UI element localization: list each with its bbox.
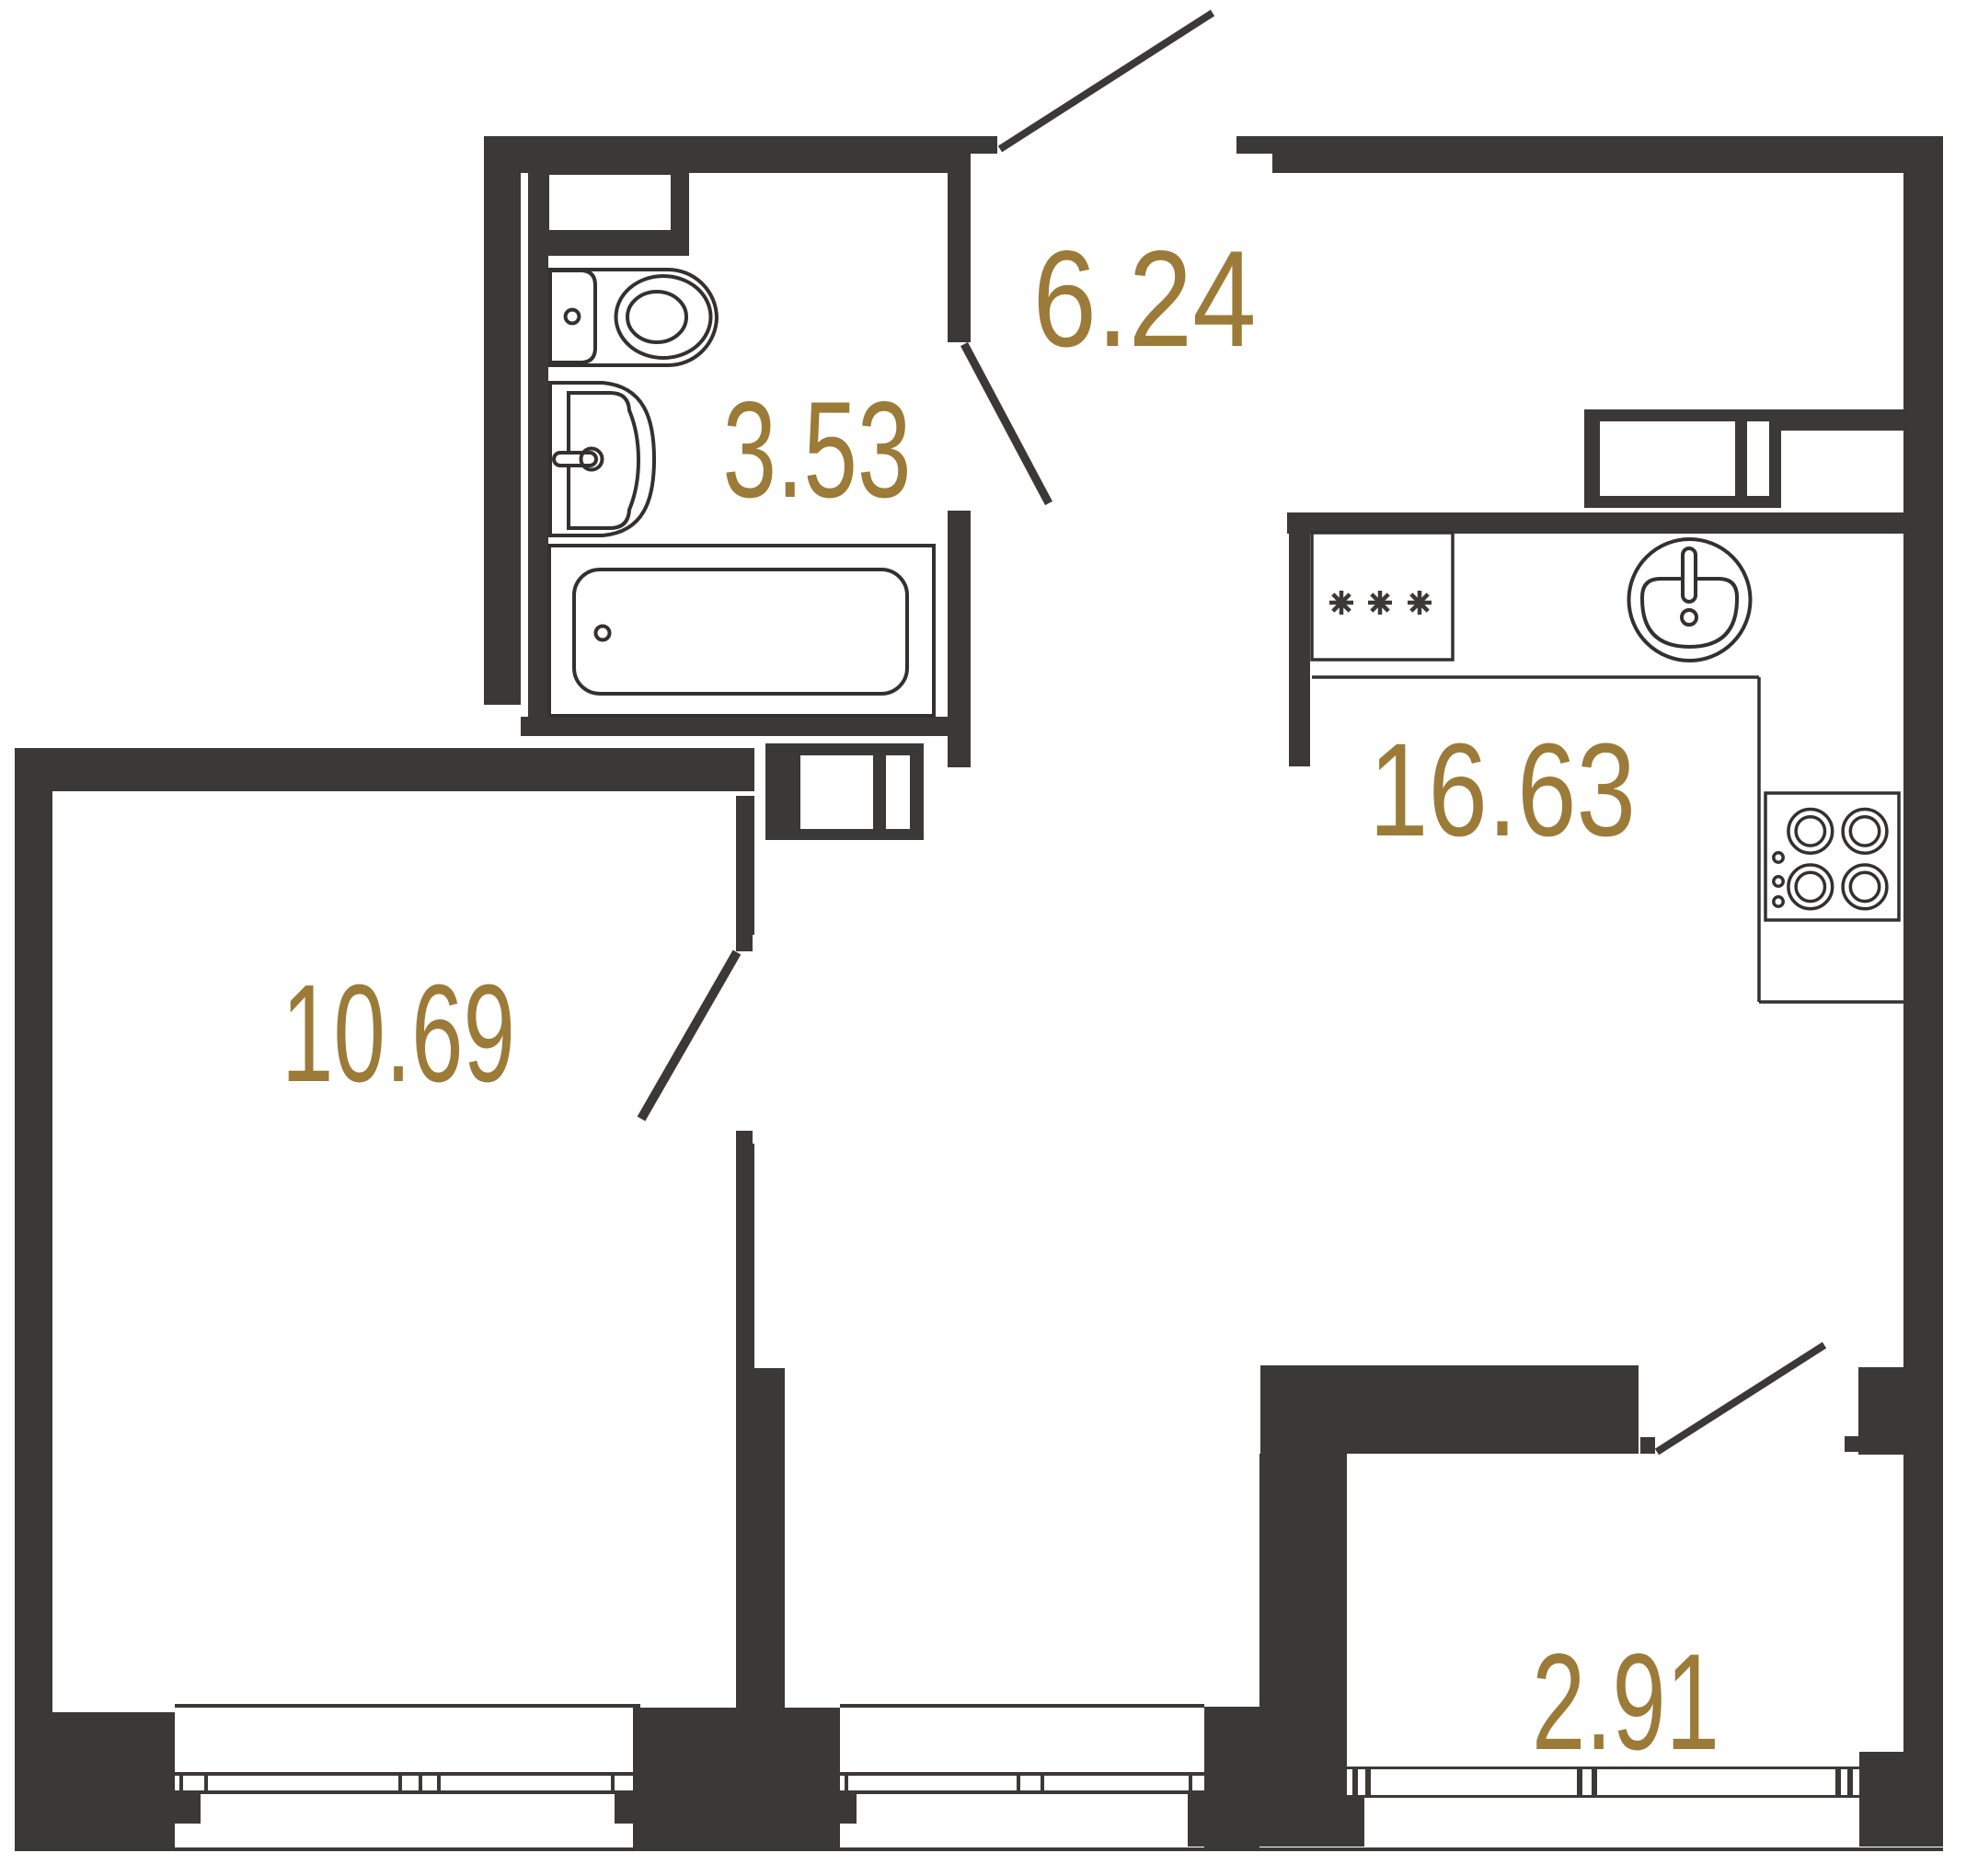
svg-text:6.24: 6.24 bbox=[1033, 222, 1257, 375]
svg-text:2.91: 2.91 bbox=[1532, 1625, 1719, 1778]
svg-text:16.63: 16.63 bbox=[1369, 716, 1636, 864]
svg-text:10.69: 10.69 bbox=[282, 955, 515, 1111]
svg-text:3.53: 3.53 bbox=[723, 373, 912, 526]
